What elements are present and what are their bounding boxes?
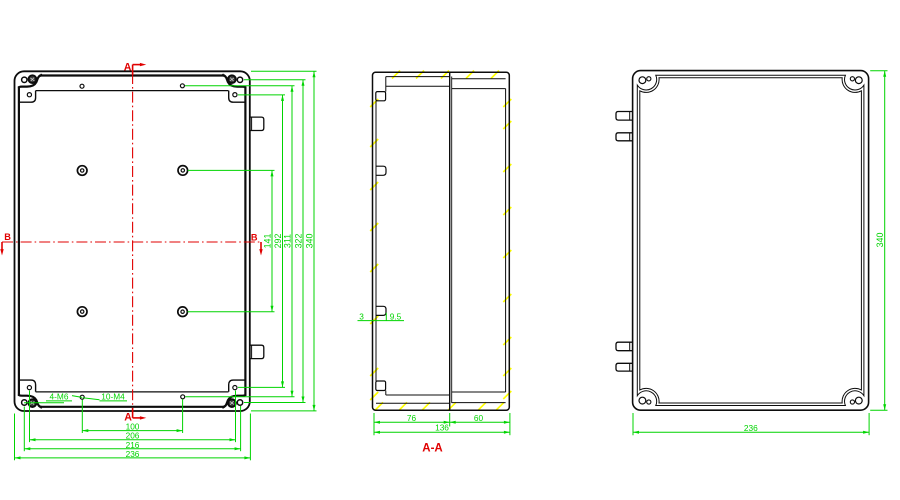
svg-text:136: 136 — [435, 422, 449, 432]
svg-text:76: 76 — [407, 413, 417, 423]
svg-text:4-M6: 4-M6 — [50, 392, 69, 402]
svg-text:A: A — [124, 62, 132, 74]
svg-text:236: 236 — [126, 449, 140, 459]
svg-text:322: 322 — [293, 234, 303, 249]
svg-text:B: B — [251, 233, 258, 243]
svg-text:3: 3 — [359, 311, 364, 321]
svg-text:340: 340 — [875, 233, 885, 248]
svg-text:292: 292 — [273, 234, 283, 249]
svg-text:10-M4: 10-M4 — [101, 392, 125, 402]
svg-text:9.5: 9.5 — [390, 311, 402, 321]
svg-text:236: 236 — [744, 423, 758, 433]
svg-text:141: 141 — [262, 234, 272, 249]
svg-text:A-A: A-A — [422, 443, 442, 455]
svg-text:340: 340 — [304, 234, 314, 249]
svg-text:B: B — [4, 232, 11, 242]
svg-text:60: 60 — [474, 413, 484, 423]
svg-text:311: 311 — [282, 234, 292, 248]
